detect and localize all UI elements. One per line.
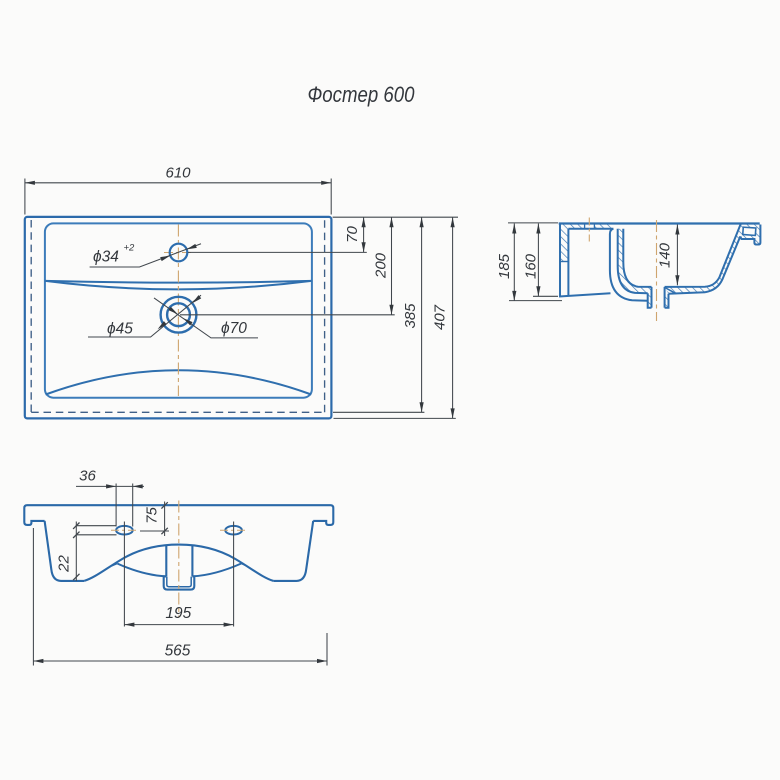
svg-text:565: 565 [165, 643, 191, 660]
svg-text:+2: +2 [124, 243, 136, 254]
svg-text:195: 195 [165, 605, 191, 622]
svg-text:ϕ45: ϕ45 [107, 321, 133, 338]
svg-text:ϕ70: ϕ70 [221, 320, 247, 337]
svg-text:200: 200 [373, 252, 390, 279]
svg-text:22: 22 [56, 555, 73, 573]
svg-text:70: 70 [344, 226, 361, 243]
svg-text:385: 385 [402, 303, 419, 329]
svg-text:610: 610 [165, 165, 191, 182]
svg-text:140: 140 [657, 242, 674, 268]
svg-text:75: 75 [143, 507, 160, 524]
svg-text:36: 36 [79, 468, 96, 485]
svg-text:160: 160 [523, 253, 540, 279]
svg-text:185: 185 [496, 253, 513, 279]
svg-text:407: 407 [432, 304, 449, 330]
svg-text:Фостер 600: Фостер 600 [308, 82, 416, 107]
svg-text:ϕ34: ϕ34 [93, 249, 119, 266]
